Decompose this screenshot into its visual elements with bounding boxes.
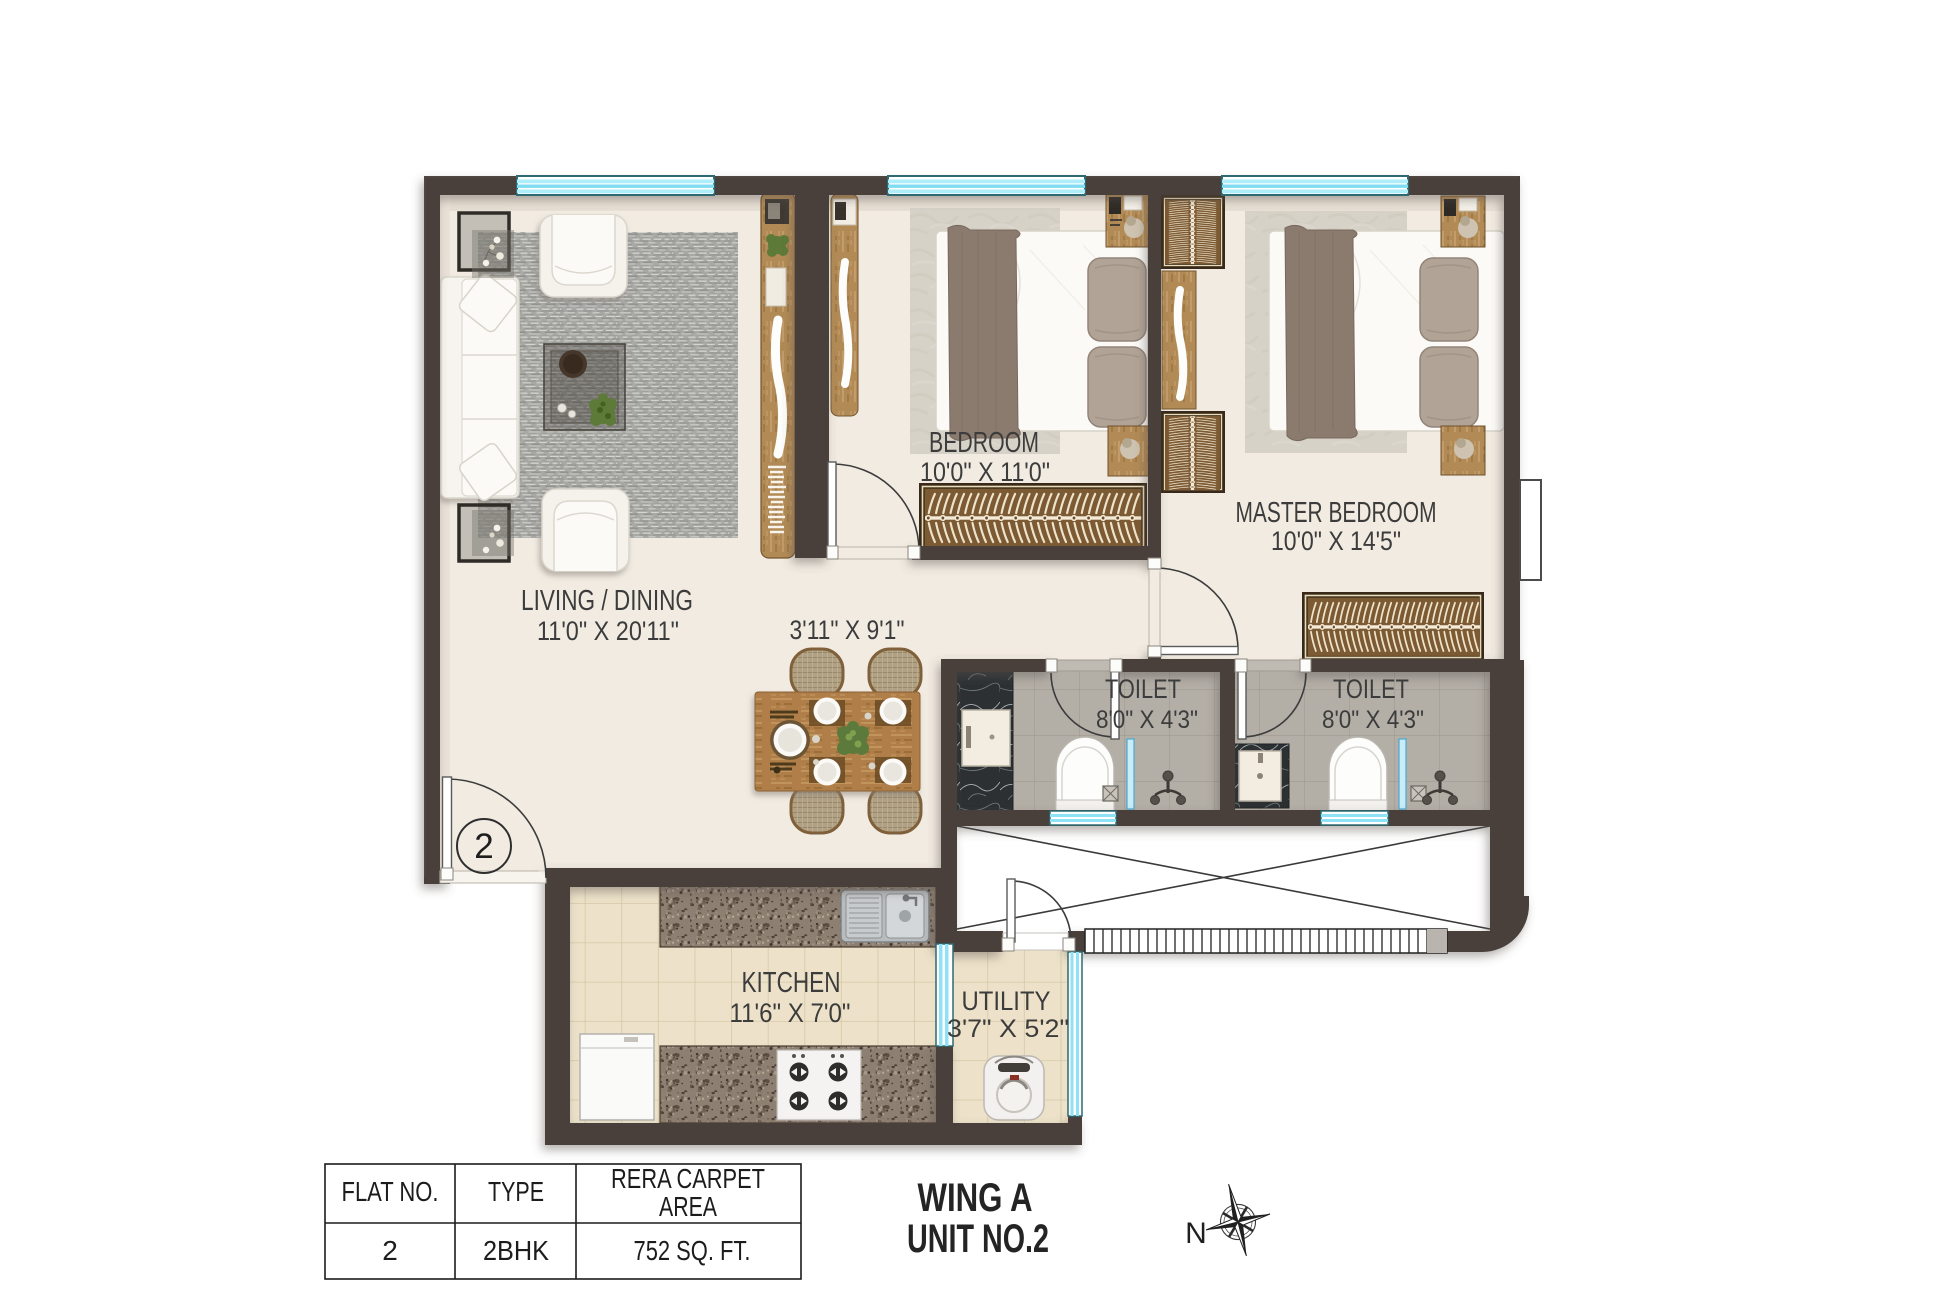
svg-text:UTILITY: UTILITY bbox=[962, 986, 1051, 1016]
svg-text:AREA: AREA bbox=[659, 1191, 717, 1222]
svg-text:RERA CARPET: RERA CARPET bbox=[611, 1163, 765, 1194]
svg-text:BEDROOM: BEDROOM bbox=[929, 427, 1039, 459]
svg-text:LIVING / DINING: LIVING / DINING bbox=[521, 585, 693, 617]
svg-text:KITCHEN: KITCHEN bbox=[742, 967, 841, 999]
svg-text:752 SQ. FT.: 752 SQ. FT. bbox=[634, 1235, 751, 1266]
svg-text:UNIT NO.2: UNIT NO.2 bbox=[907, 1217, 1049, 1261]
svg-text:11'0" X 20'11": 11'0" X 20'11" bbox=[537, 616, 679, 646]
svg-text:2BHK: 2BHK bbox=[483, 1235, 549, 1266]
svg-text:10'0" X 14'5": 10'0" X 14'5" bbox=[1271, 526, 1401, 556]
svg-text:WING A: WING A bbox=[918, 1176, 1033, 1220]
svg-text:MASTER BEDROOM: MASTER BEDROOM bbox=[1236, 497, 1437, 529]
svg-text:10'0" X 11'0": 10'0" X 11'0" bbox=[920, 457, 1050, 487]
svg-text:2: 2 bbox=[382, 1235, 398, 1266]
svg-text:N: N bbox=[1185, 1217, 1207, 1250]
svg-text:11'6" X 7'0": 11'6" X 7'0" bbox=[730, 998, 851, 1028]
svg-text:2: 2 bbox=[474, 827, 493, 866]
svg-text:TYPE: TYPE bbox=[488, 1176, 544, 1207]
svg-text:TOILET: TOILET bbox=[1333, 674, 1409, 704]
svg-text:TOILET: TOILET bbox=[1105, 674, 1181, 704]
svg-text:8'0" X 4'3": 8'0" X 4'3" bbox=[1096, 706, 1198, 734]
svg-text:FLAT NO.: FLAT NO. bbox=[342, 1176, 439, 1207]
svg-text:8'0" X 4'3": 8'0" X 4'3" bbox=[1322, 706, 1424, 734]
svg-text:3'7" X 5'2": 3'7" X 5'2" bbox=[947, 1015, 1069, 1043]
svg-text:3'11" X 9'1": 3'11" X 9'1" bbox=[790, 615, 905, 645]
